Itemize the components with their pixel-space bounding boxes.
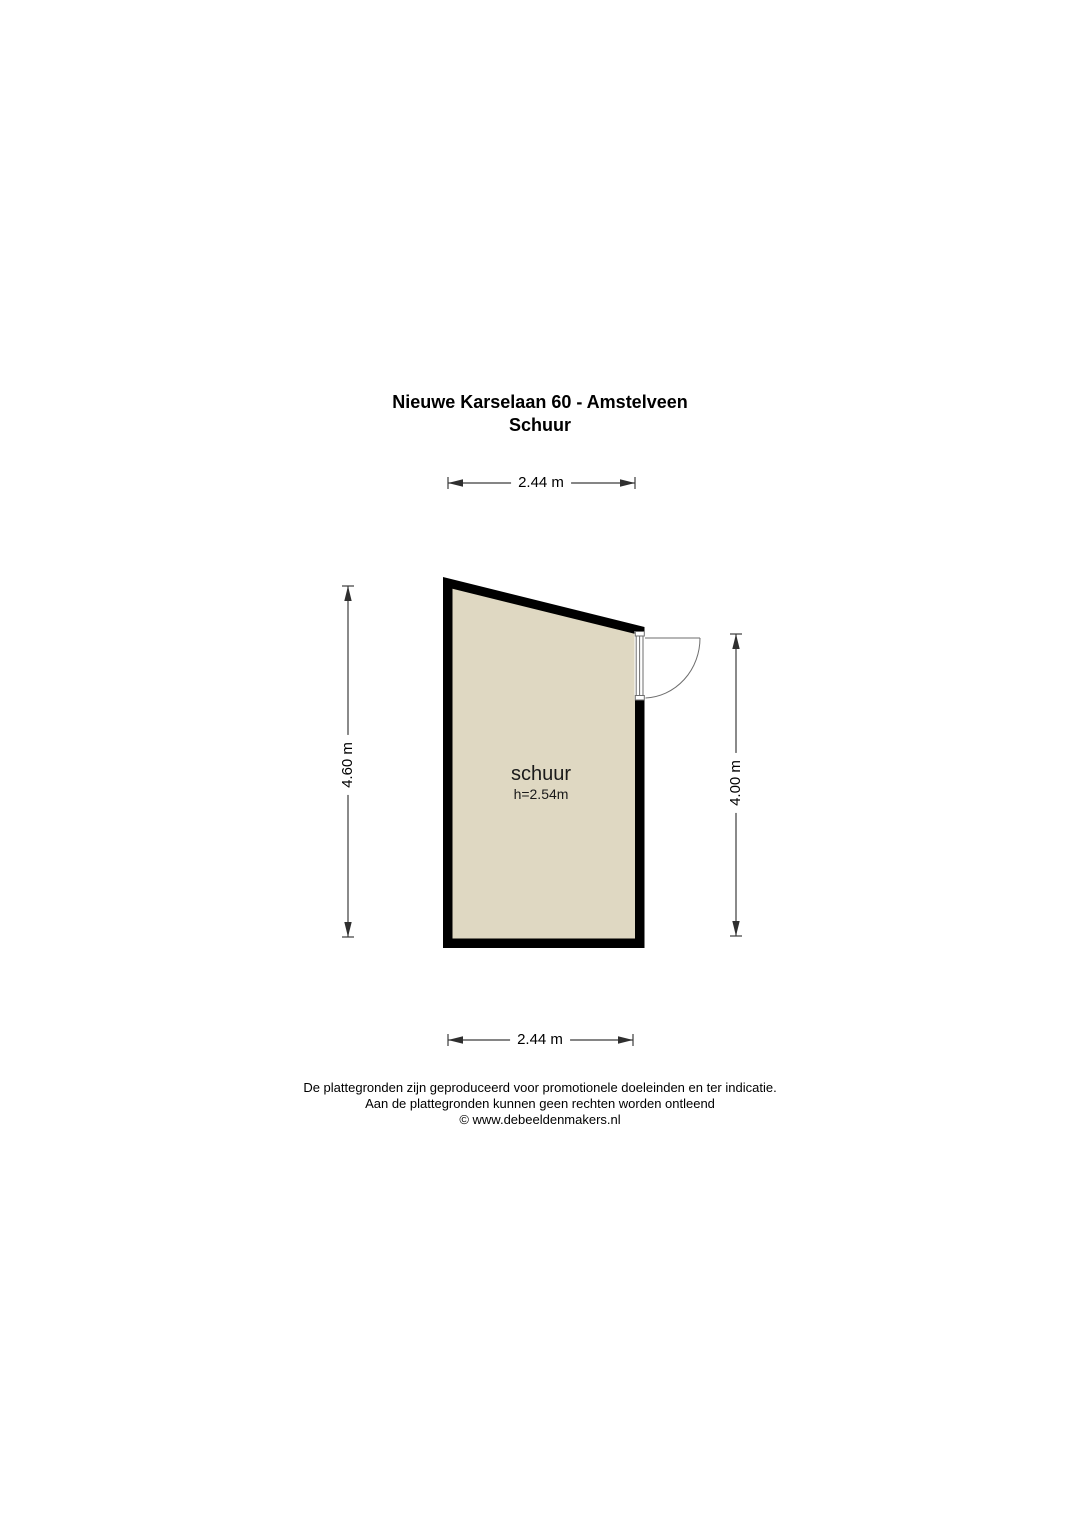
dimension-label-right: 4.00 m (727, 753, 745, 813)
footer-line-3: © www.debeeldenmakers.nl (0, 1112, 1080, 1128)
footer-line-2: Aan de plattegronden kunnen geen rechten… (0, 1096, 1080, 1112)
room-height-label: h=2.54m (511, 786, 571, 802)
room-name: schuur (511, 763, 571, 786)
dimension-label-bottom: 2.44 m (510, 1031, 570, 1049)
dimension-label-top: 2.44 m (511, 474, 571, 492)
footer-disclaimer: De plattegronden zijn geproduceerd voor … (0, 1080, 1080, 1128)
dimension-label-left: 4.60 m (339, 735, 357, 795)
door-jamb-bottom (635, 696, 644, 701)
door-swing-arc (646, 638, 701, 698)
footer-line-1: De plattegronden zijn geproduceerd voor … (0, 1080, 1080, 1096)
floorplan-page: Nieuwe Karselaan 60 - Amstelveen Schuur (0, 0, 1080, 1527)
room-label: schuur h=2.54m (511, 763, 571, 802)
door-jamb-top (635, 632, 644, 637)
